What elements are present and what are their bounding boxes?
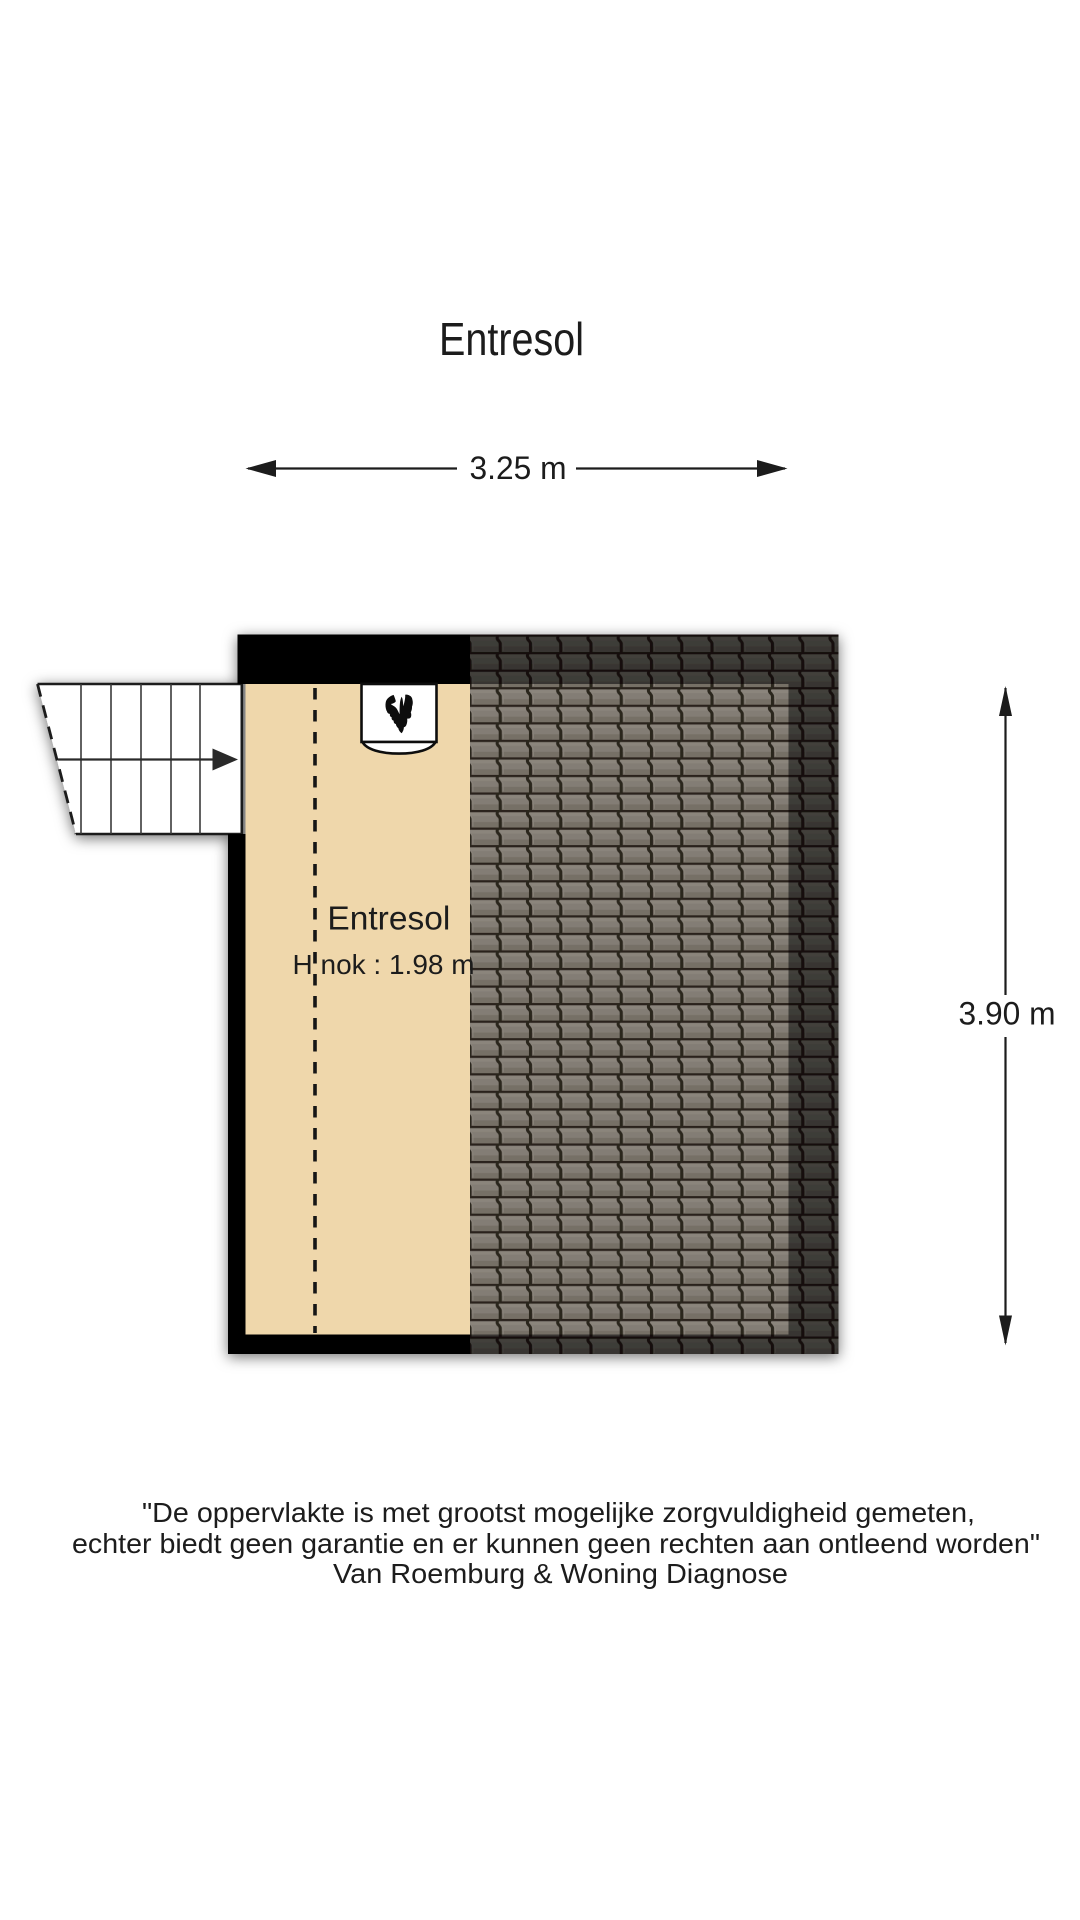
svg-text:Entresol: Entresol [439,313,584,365]
svg-text:echter biedt geen garantie en: echter biedt geen garantie en er kunnen … [72,1528,1040,1559]
svg-text:3.25 m: 3.25 m [470,450,567,486]
svg-text:Van Roemburg & Woning Diagnose: Van Roemburg & Woning Diagnose [333,1558,788,1589]
svg-text:H nok : 1.98 m: H nok : 1.98 m [293,949,475,980]
svg-text:"De oppervlakte is met grootst: "De oppervlakte is met grootst mogelijke… [142,1497,975,1528]
svg-text:Entresol: Entresol [327,900,450,937]
svg-text:3.90 m: 3.90 m [959,996,1056,1032]
